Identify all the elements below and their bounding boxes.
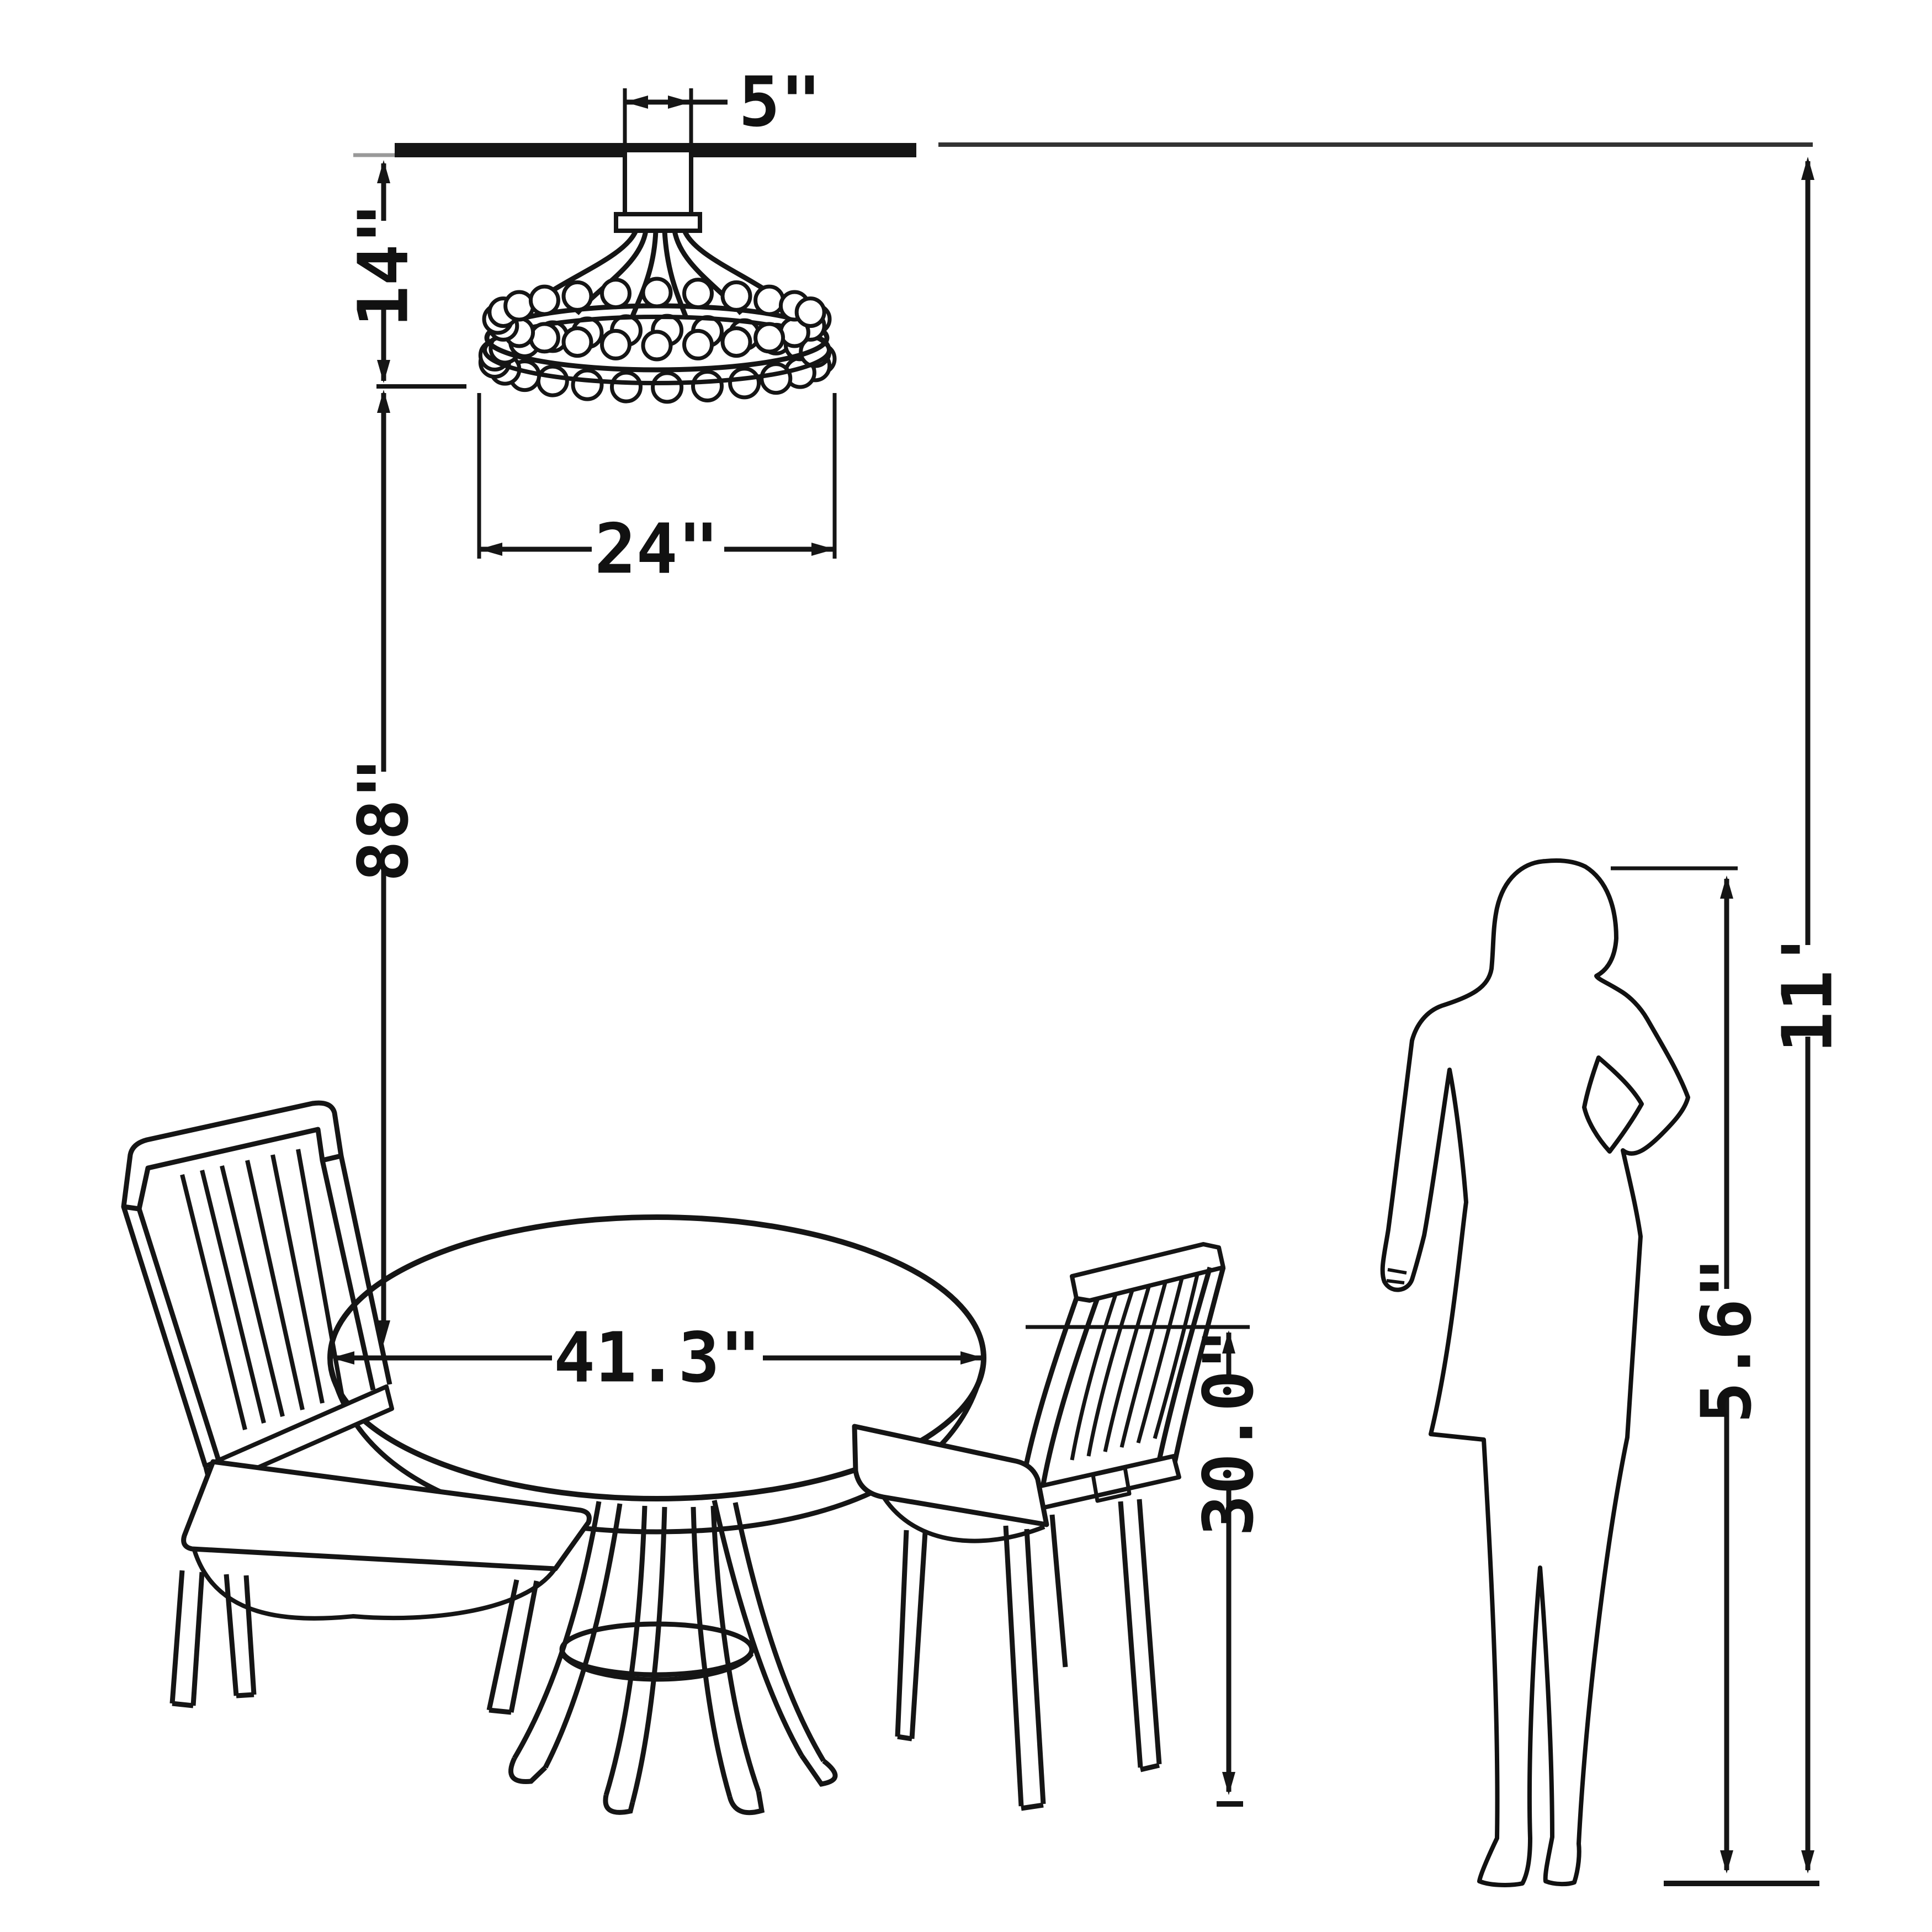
woman-outline (1383, 861, 1688, 1885)
chandelier-bead (693, 372, 722, 401)
chandelier-bead (643, 332, 671, 359)
chandelier-bead (762, 364, 790, 393)
chair-crest-rail (124, 1103, 341, 1209)
ceiling (353, 145, 1813, 155)
chandelier-bead (564, 328, 591, 356)
chandelier-bead (530, 324, 558, 352)
dim-hanging-height: 14" (344, 160, 467, 386)
chandelier-bead (538, 367, 567, 395)
chandelier-bead (653, 373, 682, 402)
arrow-up-icon (377, 390, 390, 413)
dimension-diagram: 5" 14" 24" (0, 0, 1932, 1932)
dim-chandelier-to-tabletop: 88" (344, 390, 424, 1344)
arrow-down-icon (1222, 1772, 1235, 1795)
chandelier-bead (756, 286, 783, 314)
chair-legs (898, 1499, 1159, 1808)
hanging-height-label: 14" (344, 203, 424, 327)
chandelier-bead (612, 373, 641, 401)
chandelier-bead (602, 331, 630, 358)
chandelier (480, 150, 835, 402)
table-diameter-label: 41.3" (554, 1318, 761, 1398)
chair-legs (172, 1570, 537, 1712)
chandelier-bead (564, 282, 591, 310)
arrow-right-icon (668, 95, 691, 109)
arrow-down-icon (377, 360, 390, 383)
arrow-left-icon (479, 543, 502, 556)
chandelier-bead (643, 279, 671, 306)
chair-seat (854, 1426, 1047, 1525)
dim-ceiling-height: 11' (1768, 157, 1848, 1873)
arrow-down-icon (1801, 1850, 1814, 1873)
chandelier-canopy (625, 150, 691, 215)
arrow-up-icon (1801, 157, 1814, 180)
arrow-up-icon (377, 160, 390, 183)
table-height-label: 30.0" (1189, 1329, 1269, 1536)
canopy-width-label: 5" (739, 62, 822, 142)
chandelier-bead (730, 369, 759, 397)
arrow-up-icon (1720, 875, 1733, 899)
dim-chandelier-diameter: 24" (479, 393, 835, 590)
arrow-down-icon (1720, 1850, 1733, 1873)
chandelier-bead (573, 370, 602, 399)
arrow-right-icon (811, 543, 835, 556)
chandelier-bead (723, 282, 750, 310)
chandelier-diameter-label: 24" (595, 509, 719, 590)
chandelier-to-tabletop-label: 88" (344, 757, 424, 882)
diagram-drawing: 5" 14" 24" (0, 0, 1932, 1932)
chandelier-bead (797, 299, 824, 326)
chandelier-bead (602, 280, 630, 307)
ceiling-height-label: 11' (1768, 928, 1848, 1053)
chandelier-bead (530, 286, 558, 314)
chandelier-canopy-lip (616, 214, 700, 231)
dim-canopy-width: 5" (625, 62, 822, 148)
chandelier-bead (723, 328, 750, 356)
chandelier-bead (506, 292, 533, 320)
dim-table-height: 30.0" (1189, 1329, 1269, 1804)
chandelier-bead (684, 280, 712, 307)
person-height-label: 5.6" (1687, 1257, 1767, 1423)
chandelier-bead (684, 331, 712, 358)
woman-silhouette (1383, 861, 1688, 1885)
chair-back-slats (182, 1149, 342, 1430)
arrow-left-icon (625, 95, 648, 109)
chandelier-bead (756, 324, 783, 352)
